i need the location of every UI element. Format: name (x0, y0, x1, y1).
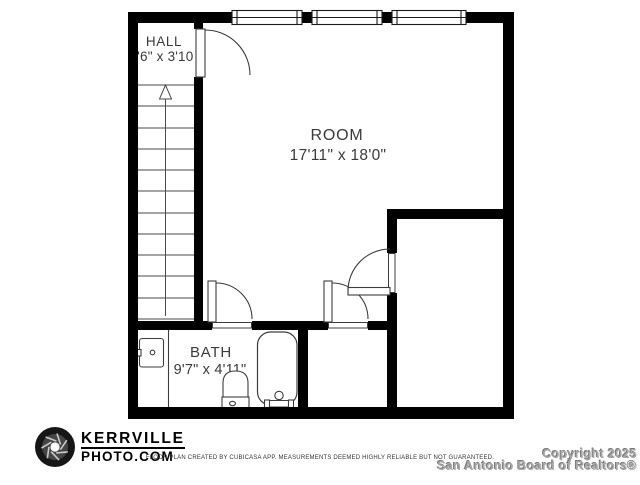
kerrville-photo-logo: KERRVILLE PHOTO.COM (34, 426, 185, 468)
camera-aperture-icon (34, 426, 76, 468)
floor-plan-page: HALL 3'6" x 3'10" ROOM 17'11" x 18'0" BA… (0, 0, 640, 480)
window-2 (312, 11, 382, 25)
hall-dimensions: 3'6" x 3'10" (130, 49, 199, 64)
logo-line1: KERRVILLE (81, 431, 185, 449)
bath-label: BATH (190, 344, 232, 361)
wall-mid-horizontal (387, 209, 514, 219)
copyright-line2: San Antonio Board of Realtors® (437, 461, 637, 473)
windows (232, 11, 466, 25)
hall-label: HALL (146, 34, 182, 49)
staircase (138, 85, 194, 319)
wall-bath-right (298, 321, 308, 419)
window-1 (232, 11, 302, 25)
room-dimensions: 17'11" x 18'0" (290, 147, 387, 164)
copyright-watermark: Copyright 2025 San Antonio Board of Real… (437, 449, 637, 472)
wall-bottom (128, 407, 514, 419)
bathtub (258, 332, 298, 408)
wall-mid-vertical (387, 209, 397, 419)
window-3 (392, 11, 466, 25)
toilet (222, 371, 249, 409)
room-label: ROOM (311, 127, 364, 144)
wall-left (128, 12, 138, 419)
doors (194, 29, 397, 330)
door-back-room (348, 249, 397, 295)
door-hall (194, 29, 250, 77)
floor-plan-drawing: HALL 3'6" x 3'10" ROOM 17'11" x 18'0" BA… (0, 0, 640, 480)
door-bath (208, 281, 252, 330)
walls (128, 12, 514, 419)
stairs-up-arrow-icon (160, 85, 172, 316)
